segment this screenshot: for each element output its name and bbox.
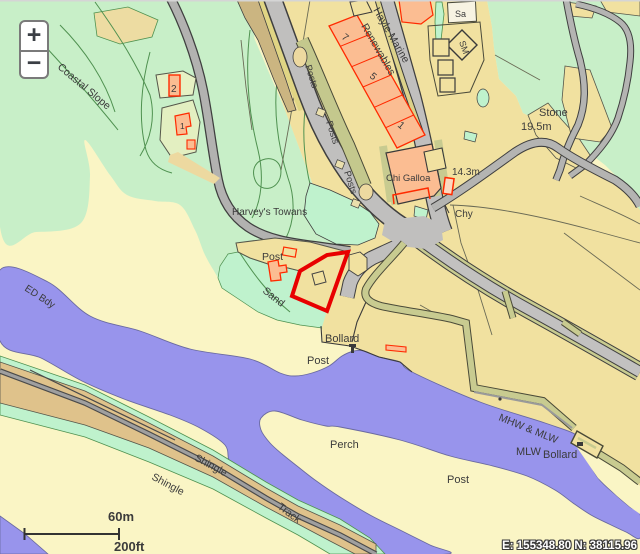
svg-text:200ft: 200ft [114,539,145,554]
svg-text:Chi Galloa: Chi Galloa [386,173,431,184]
svg-text:Bollard: Bollard [325,333,359,345]
svg-text:Chy: Chy [455,209,473,220]
svg-text:Post: Post [307,355,329,367]
svg-text:Perch: Perch [330,439,359,451]
svg-text:2: 2 [171,84,177,95]
svg-text:19.5m: 19.5m [521,121,552,133]
svg-text:60m: 60m [108,509,134,524]
svg-text:Stone: Stone [539,107,568,119]
svg-text:Post: Post [447,474,469,486]
svg-text:1: 1 [180,121,185,131]
svg-text:Sa: Sa [455,9,466,19]
svg-text:14.3m: 14.3m [452,167,480,178]
svg-text:Bollard: Bollard [543,449,577,461]
svg-text:Post: Post [262,251,283,263]
svg-text:Harvey's Towans: Harvey's Towans [232,207,307,218]
svg-text:MLW: MLW [516,446,541,458]
